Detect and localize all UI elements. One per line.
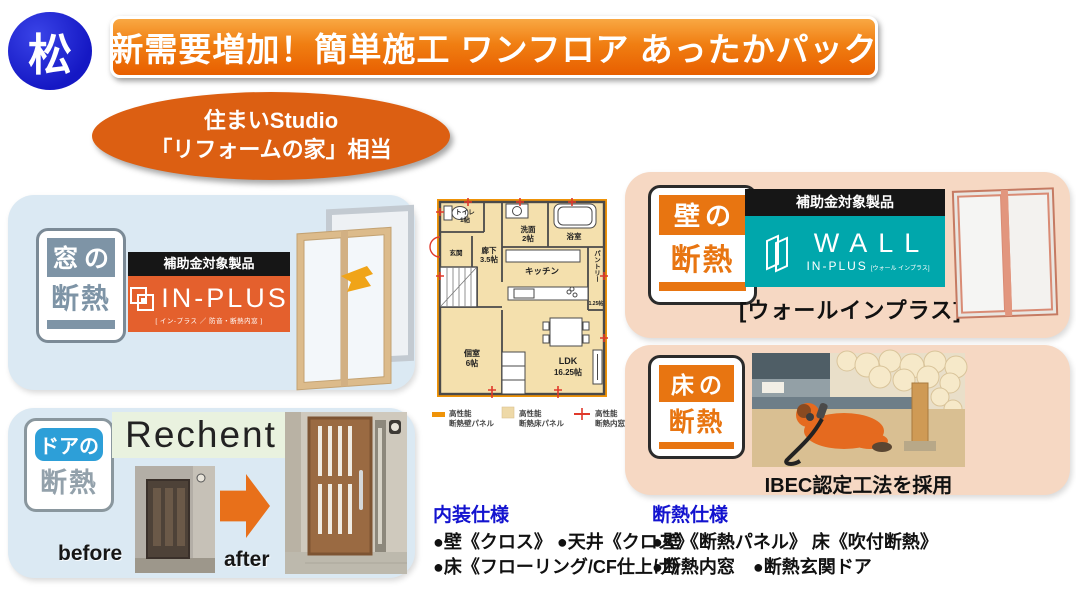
badge-window-top: 窓の xyxy=(47,238,115,277)
floor-insulation-badge: 床の 断熱 xyxy=(648,355,745,459)
room-washroom-size: 2帖 xyxy=(522,233,534,243)
badge-floor-bottom: 断熱 xyxy=(668,402,724,439)
door-insulation-badge: ドアの 断熱 xyxy=(24,418,114,512)
legend-inner-window-line1: 高性能 xyxy=(595,408,618,418)
room-kitchen: キッチン xyxy=(525,266,560,276)
badge-floor-top: 床の xyxy=(659,365,734,402)
room-hallway-size: 3.5帖 xyxy=(480,254,498,264)
wall-insulation-panel: 壁の 断熱 補助金対象製品 WALL IN-PLUS [ウォール インプラス] xyxy=(625,172,1070,338)
stairs xyxy=(440,267,477,307)
room-hallway: 廊下 xyxy=(482,245,497,255)
wall-brand: WALL xyxy=(806,230,931,257)
badge-window-bottom: 断熱 xyxy=(51,277,111,317)
room-toilet: トイレ xyxy=(455,208,475,216)
room-ldk-size: 16.25帖 xyxy=(554,367,582,377)
legend-wall-panel-line1: 高性能 xyxy=(449,408,472,418)
slide-canvas: 松 新需要増加！簡単施工 ワンフロア あったかパック 住まいStudio 「リフ… xyxy=(0,0,1076,600)
room-bathroom: 浴室 xyxy=(567,231,582,241)
badge-window-underline xyxy=(47,320,115,329)
wall-insulation-badge: 壁の 断熱 xyxy=(648,185,757,305)
legend-wall-panel-swatch xyxy=(432,412,445,417)
room-ldk: LDK xyxy=(559,356,578,366)
wall-inplus-caption: [ウォールインプラス] xyxy=(739,293,951,325)
grade-circle: 松 xyxy=(8,12,92,90)
inplus-logo-body: IN-PLUS [ イン-プラス ／ 防音・断熱内窓 ] xyxy=(128,276,290,332)
insulation-spec-line2: ●断熱内窓 ●断熱玄関ドア xyxy=(652,555,938,580)
page-title: 新需要増加！簡単施工 ワンフロア あったかパック xyxy=(110,23,877,71)
floor-insulation-panel: 床の 断熱 xyxy=(625,345,1070,495)
legend-inner-window-line2: 断熱内窓 xyxy=(595,418,625,428)
inner-window-illustration xyxy=(295,198,417,388)
wall-panel-product-image xyxy=(953,182,1061,324)
legend-floor-panel-line2: 断熱床パネル xyxy=(519,418,564,428)
inner-window-icon xyxy=(129,286,155,312)
before-after-arrow-icon xyxy=(220,474,270,538)
porch-lamp-icon xyxy=(389,420,401,434)
insulation-spec: 断熱仕様 ●壁《断熱パネル》 床《吹付断熱》 ●断熱内窓 ●断熱玄関ドア xyxy=(652,500,938,580)
oval-line1: 住まいStudio xyxy=(204,107,338,136)
wall-brand-small: [ウォール インプラス] xyxy=(871,263,930,272)
badge-wall-underline xyxy=(659,282,746,291)
insulation-spec-line1: ●壁《断熱パネル》 床《吹付断熱》 xyxy=(652,530,938,555)
rechent-logo-box: Rechent xyxy=(112,412,290,458)
inplus-logo-block: 補助金対象製品 IN-PLUS [ イン-プラス ／ 防音・断熱内窓 ] xyxy=(128,252,290,332)
room-pantry-size: 1.25帖 xyxy=(589,300,604,307)
badge-door-top: ドアの xyxy=(35,428,103,461)
room-toilet-size: 1帖 xyxy=(460,215,471,224)
wall-panel-icon xyxy=(760,231,796,273)
window-insulation-panel: 窓の 断熱 補助金対象製品 IN-PLUS [ イン-プラス ／ 防音・断熱内窓… xyxy=(8,195,415,390)
room-washroom: 洗面 xyxy=(521,224,536,234)
door-insulation-panel: ドアの 断熱 Rechent xyxy=(8,408,415,578)
equivalence-oval-badge: 住まいStudio 「リフォームの家」相当 xyxy=(92,92,450,180)
door-handle xyxy=(359,470,363,510)
badge-wall-top: 壁の xyxy=(659,195,746,235)
insulation-spec-title: 断熱仕様 xyxy=(652,500,938,527)
floorplan: トイレ 1帖 玄関 廊下 3.5帖 洗面 2帖 浴室 キッチン パントリー 1.… xyxy=(428,192,637,458)
subsidy-label: 補助金対象製品 xyxy=(745,189,945,216)
wall-brand-sub: IN-PLUS xyxy=(806,259,867,273)
rechent-brand: Rechent xyxy=(125,414,277,456)
door-before-photo xyxy=(135,466,215,573)
legend-wall-panel-line2: 断熱壁パネル xyxy=(449,418,494,428)
inplus-brand: IN-PLUS xyxy=(161,283,289,314)
grade-label: 松 xyxy=(28,19,72,83)
door-after-photo xyxy=(285,412,407,574)
room-entrance: 玄関 xyxy=(450,248,464,257)
floorplan-legend: 高性能 断熱壁パネル 高性能 断熱床パネル 高性能 断熱内窓 xyxy=(432,407,625,428)
legend-inner-window-swatch xyxy=(574,408,590,420)
badge-wall-bottom: 断熱 xyxy=(671,235,735,279)
title-banner: 新需要増加！簡単施工 ワンフロア あったかパック xyxy=(110,16,878,78)
room-private: 個室 xyxy=(463,348,480,358)
room-private-size: 6帖 xyxy=(466,358,478,368)
wall-inplus-logo-block: 補助金対象製品 WALL IN-PLUS [ウォール インプラス] xyxy=(745,189,945,287)
before-label: before xyxy=(58,542,122,566)
legend-floor-panel-line1: 高性能 xyxy=(519,408,542,418)
porch-lamp-icon xyxy=(197,474,205,482)
legend-floor-panel-swatch xyxy=(502,407,514,418)
after-label: after xyxy=(224,548,270,572)
inplus-brand-sub: [ イン-プラス ／ 防音・断熱内窓 ] xyxy=(155,315,262,325)
badge-door-bottom: 断熱 xyxy=(40,461,98,500)
window-insulation-badge: 窓の 断熱 xyxy=(36,228,126,343)
wall-inplus-logo-body: WALL IN-PLUS [ウォール インプラス] xyxy=(745,216,945,287)
badge-floor-underline xyxy=(659,442,734,449)
oval-line2: 「リフォームの家」相当 xyxy=(150,136,391,165)
ibec-caption: IBEC認定工法を採用 xyxy=(752,469,965,498)
subsidy-label: 補助金対象製品 xyxy=(128,252,290,276)
spray-insulation-illustration xyxy=(752,353,965,467)
